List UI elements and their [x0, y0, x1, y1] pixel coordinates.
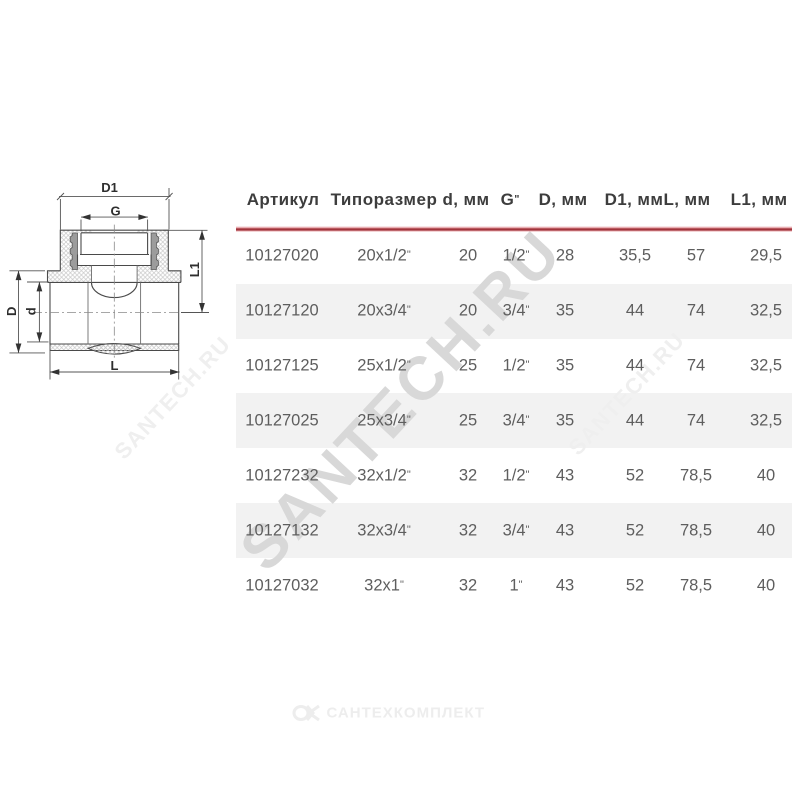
svg-text:D: D [4, 307, 19, 316]
svg-text:G: G [110, 204, 120, 219]
svg-text:d: d [23, 307, 38, 315]
svg-text:L: L [111, 358, 119, 373]
svg-text:L1: L1 [187, 262, 202, 277]
svg-text:D1: D1 [101, 180, 118, 195]
